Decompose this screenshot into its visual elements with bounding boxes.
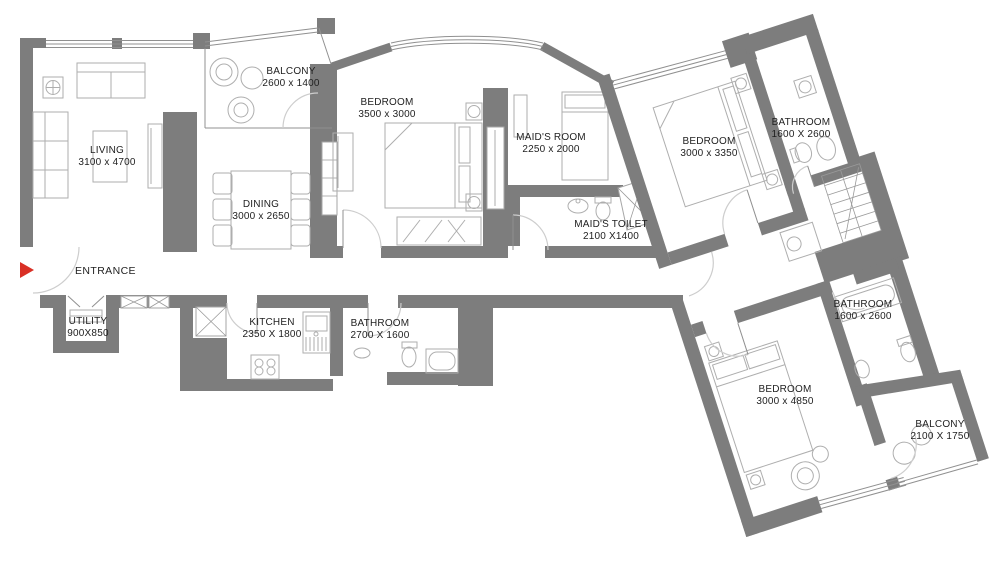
room-name: KITCHEN [249,317,294,328]
room-dims: 3100 x 4700 [78,157,135,169]
room-label-bathroom-3: BATHROOM 2700 X 1600 [351,318,410,342]
room-name: BEDROOM [682,136,735,147]
room-dims: 3000 x 3350 [680,148,737,160]
floor-plan: LIVING 3100 x 4700 BALCONY 2600 x 1400 D… [0,0,1000,580]
room-name: DINING [243,199,279,210]
room-label-living: LIVING 3100 x 4700 [78,145,135,169]
room-name: BALCONY [266,66,315,77]
room-label-kitchen: KITCHEN 2350 X 1800 [243,317,302,341]
room-name: BATHROOM [834,299,893,310]
room-dims: 2700 X 1600 [351,330,410,342]
room-name: LIVING [90,145,124,156]
floor-plan-drawing [0,0,1000,580]
room-label-balcony-1: BALCONY 2600 x 1400 [262,66,319,90]
facade-walls [332,46,612,85]
room-label-balcony-2: BALCONY 2100 X 1750 [911,419,970,443]
room-dims: 3500 x 3000 [358,109,415,121]
room-label-bathroom-1: BATHROOM 1600 X 2600 [772,117,831,141]
room-name: BEDROOM [360,97,413,108]
room-name: BALCONY [915,419,964,430]
room-dims: 3000 x 2650 [232,211,289,223]
entrance-arrow-icon [20,262,34,278]
room-label-maids-room: MAID'S ROOM 2250 x 2000 [516,132,586,156]
room-dims: 1600 X 2600 [772,129,831,141]
room-dims: 900X850 [67,328,108,340]
room-name: UTILITY [69,316,108,327]
room-label-utility: UTILITY 900X850 [67,316,108,340]
room-name: BATHROOM [772,117,831,128]
room-label-bedroom-3: BEDROOM 3000 x 4850 [756,384,813,408]
room-label-bathroom-2: BATHROOM 1600 x 2600 [834,299,893,323]
room-dims: 2600 x 1400 [262,78,319,90]
room-dims: 2100 X 1750 [911,431,970,443]
room-name: MAID'S TOILET [574,219,648,230]
room-dims: 1600 x 2600 [834,311,893,323]
room-dims: 2350 X 1800 [243,329,302,341]
rotated-wing [597,0,989,539]
entrance-label: ENTRANCE [75,265,136,277]
room-name: BATHROOM [351,318,410,329]
room-label-maids-toilet: MAID'S TOILET 2100 X1400 [574,219,648,243]
room-label-dining: DINING 3000 x 2650 [232,199,289,223]
room-dims: 3000 x 4850 [756,396,813,408]
room-dims: 2250 x 2000 [516,144,586,156]
room-name: MAID'S ROOM [516,132,586,143]
room-label-bedroom-2: BEDROOM 3000 x 3350 [680,136,737,160]
room-label-bedroom-1: BEDROOM 3500 x 3000 [358,97,415,121]
room-dims: 2100 X1400 [574,231,648,243]
room-name: BEDROOM [758,384,811,395]
